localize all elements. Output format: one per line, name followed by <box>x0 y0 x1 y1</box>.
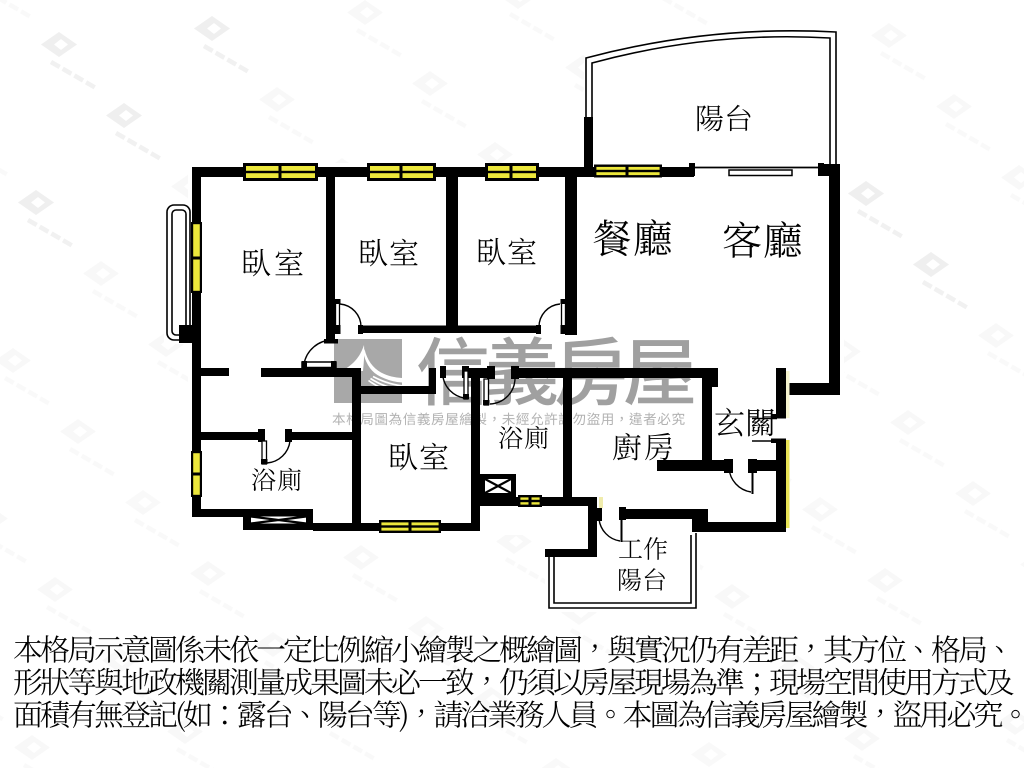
svg-text:面積有無登記(如：露台、陽台等)，請洽業務人員。本圖為信義房: 面積有無登記(如：露台、陽台等)，請洽業務人員。本圖為信義房屋繪製，盜用必究。 <box>13 691 1024 735</box>
svg-text:陽台: 陽台 <box>617 561 667 597</box>
svg-text:臥室: 臥室 <box>476 228 538 272</box>
svg-text:廚房: 廚房 <box>612 423 676 467</box>
svg-text:餐廳: 餐廳 <box>592 208 674 265</box>
svg-text:陽台: 陽台 <box>695 97 753 138</box>
svg-text:客廳: 客廳 <box>722 210 804 267</box>
svg-text:臥室: 臥室 <box>358 229 420 273</box>
svg-text:浴廁: 浴廁 <box>251 461 303 497</box>
svg-text:浴廁: 浴廁 <box>498 419 550 455</box>
svg-text:臥室: 臥室 <box>241 239 307 283</box>
svg-text:玄關: 玄關 <box>714 398 776 443</box>
svg-text:臥室: 臥室 <box>388 433 450 477</box>
